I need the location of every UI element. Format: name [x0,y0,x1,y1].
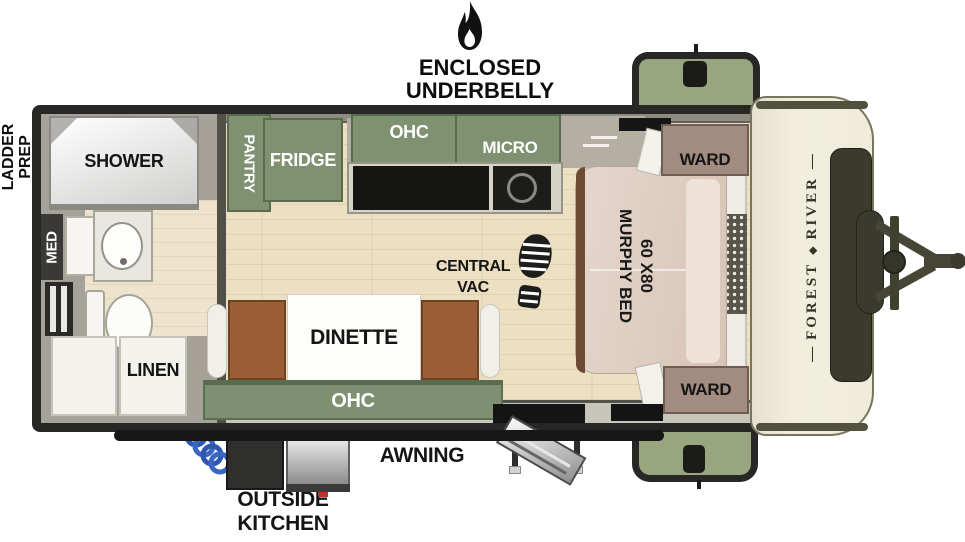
dinette-overhead-cabinet: OHC [203,380,503,420]
dinette-armrest-right [480,304,500,378]
outside-kitchen-line2: KITCHEN [193,512,373,536]
med-label: MED [44,231,61,263]
dinette-armrest-left [207,304,227,378]
storage-stub-top [694,44,698,53]
bottom-window [611,404,663,421]
bed-trim [576,167,585,373]
micro-label: MICRO [465,138,555,158]
burner [507,173,537,203]
boot-print-icon [513,232,553,312]
ladder-prep-line1: LADDER [0,124,17,191]
hitch [876,198,965,326]
flame-icon [452,0,488,54]
underbelly-line1: ENCLOSED UNDERBELLY [345,56,615,102]
murphy-bed-size: 60 X80 [636,209,657,323]
kitchen-ohc-label: OHC [359,122,459,143]
dinette-seat-left [228,300,286,380]
forest-river-logo-icon: ◆ [806,246,819,254]
entry-door-opening [493,404,585,423]
dinette-seat-right [421,300,479,380]
wardrobe-top: WARD [661,124,749,176]
griddle-knob [318,492,328,497]
griddle-base [286,484,350,492]
bathroom-window [45,282,73,336]
bathroom-sink [101,222,143,270]
central-vac-line2: VAC [427,277,519,298]
awning-bar [114,430,664,441]
cooktop [353,166,489,210]
outside-kitchen-box [226,436,284,490]
wardrobe-bottom: WARD [663,366,749,414]
linen-cabinet-left [51,336,117,416]
brand-second: RIVER [804,176,821,239]
floorplan-diagram: ENCLOSED UNDERBELLY W/ FORCED HEAT LADDE… [0,0,965,542]
storage-latch-top [683,61,707,87]
brand-first: FOREST [804,262,821,340]
medicine-cabinet: MED [41,214,63,280]
shower: SHOWER [49,116,199,206]
storage-stub-bottom [697,480,701,489]
step-foot [509,466,521,474]
cap-edge-bottom [756,423,868,431]
dinette-table: DINETTE [287,294,421,382]
central-vac-line1: CENTRAL [427,256,519,277]
bed-pillow [686,179,720,363]
murphy-bed-label: 60 X80 MURPHY BED [614,176,658,356]
linen-label: LINEN [117,360,189,381]
bathroom-zone: SHOWER MED LINEN [41,114,223,423]
brand-label: FOREST ◆ RIVER [799,140,825,376]
awning-label: AWNING [352,444,492,468]
murphy-bed-name: MURPHY BED [615,209,636,323]
central-vac-label: CENTRAL VAC [427,256,519,298]
shower-label: SHOWER [84,151,163,172]
storage-latch-bottom [683,445,705,473]
fridge: FRIDGE [263,118,343,202]
trailer-body: SHOWER MED LINEN PANTRY FRIDGE [32,105,762,432]
med-cabinet-box [65,216,95,276]
pantry-label: PANTRY [241,134,258,192]
outside-kitchen-label: OUTSIDE KITCHEN [193,488,373,536]
cap-edge-top [756,101,868,109]
